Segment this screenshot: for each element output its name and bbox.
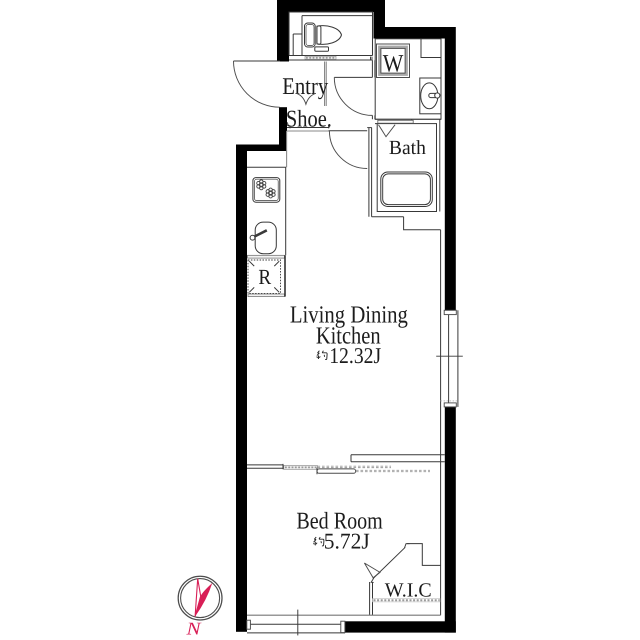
svg-text:W.I.C: W.I.C (385, 579, 432, 601)
svg-text:Entry: Entry (282, 74, 328, 100)
svg-text:Shoe.: Shoe. (286, 106, 332, 132)
svg-text:Bath: Bath (389, 137, 426, 159)
svg-text:12.32J: 12.32J (329, 343, 381, 368)
svg-text:W: W (383, 50, 404, 77)
svg-text:5.72J: 5.72J (324, 529, 370, 554)
svg-text:R: R (258, 265, 271, 289)
svg-text:N: N (185, 619, 201, 639)
